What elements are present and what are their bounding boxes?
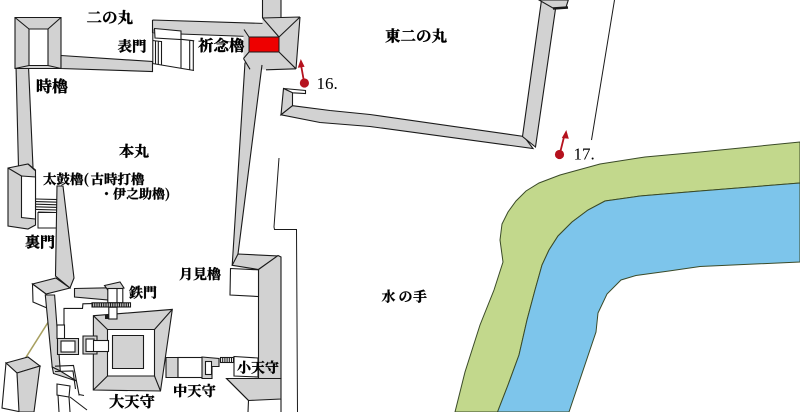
svg-text:16.: 16. xyxy=(317,74,338,93)
svg-text:17.: 17. xyxy=(574,145,595,164)
